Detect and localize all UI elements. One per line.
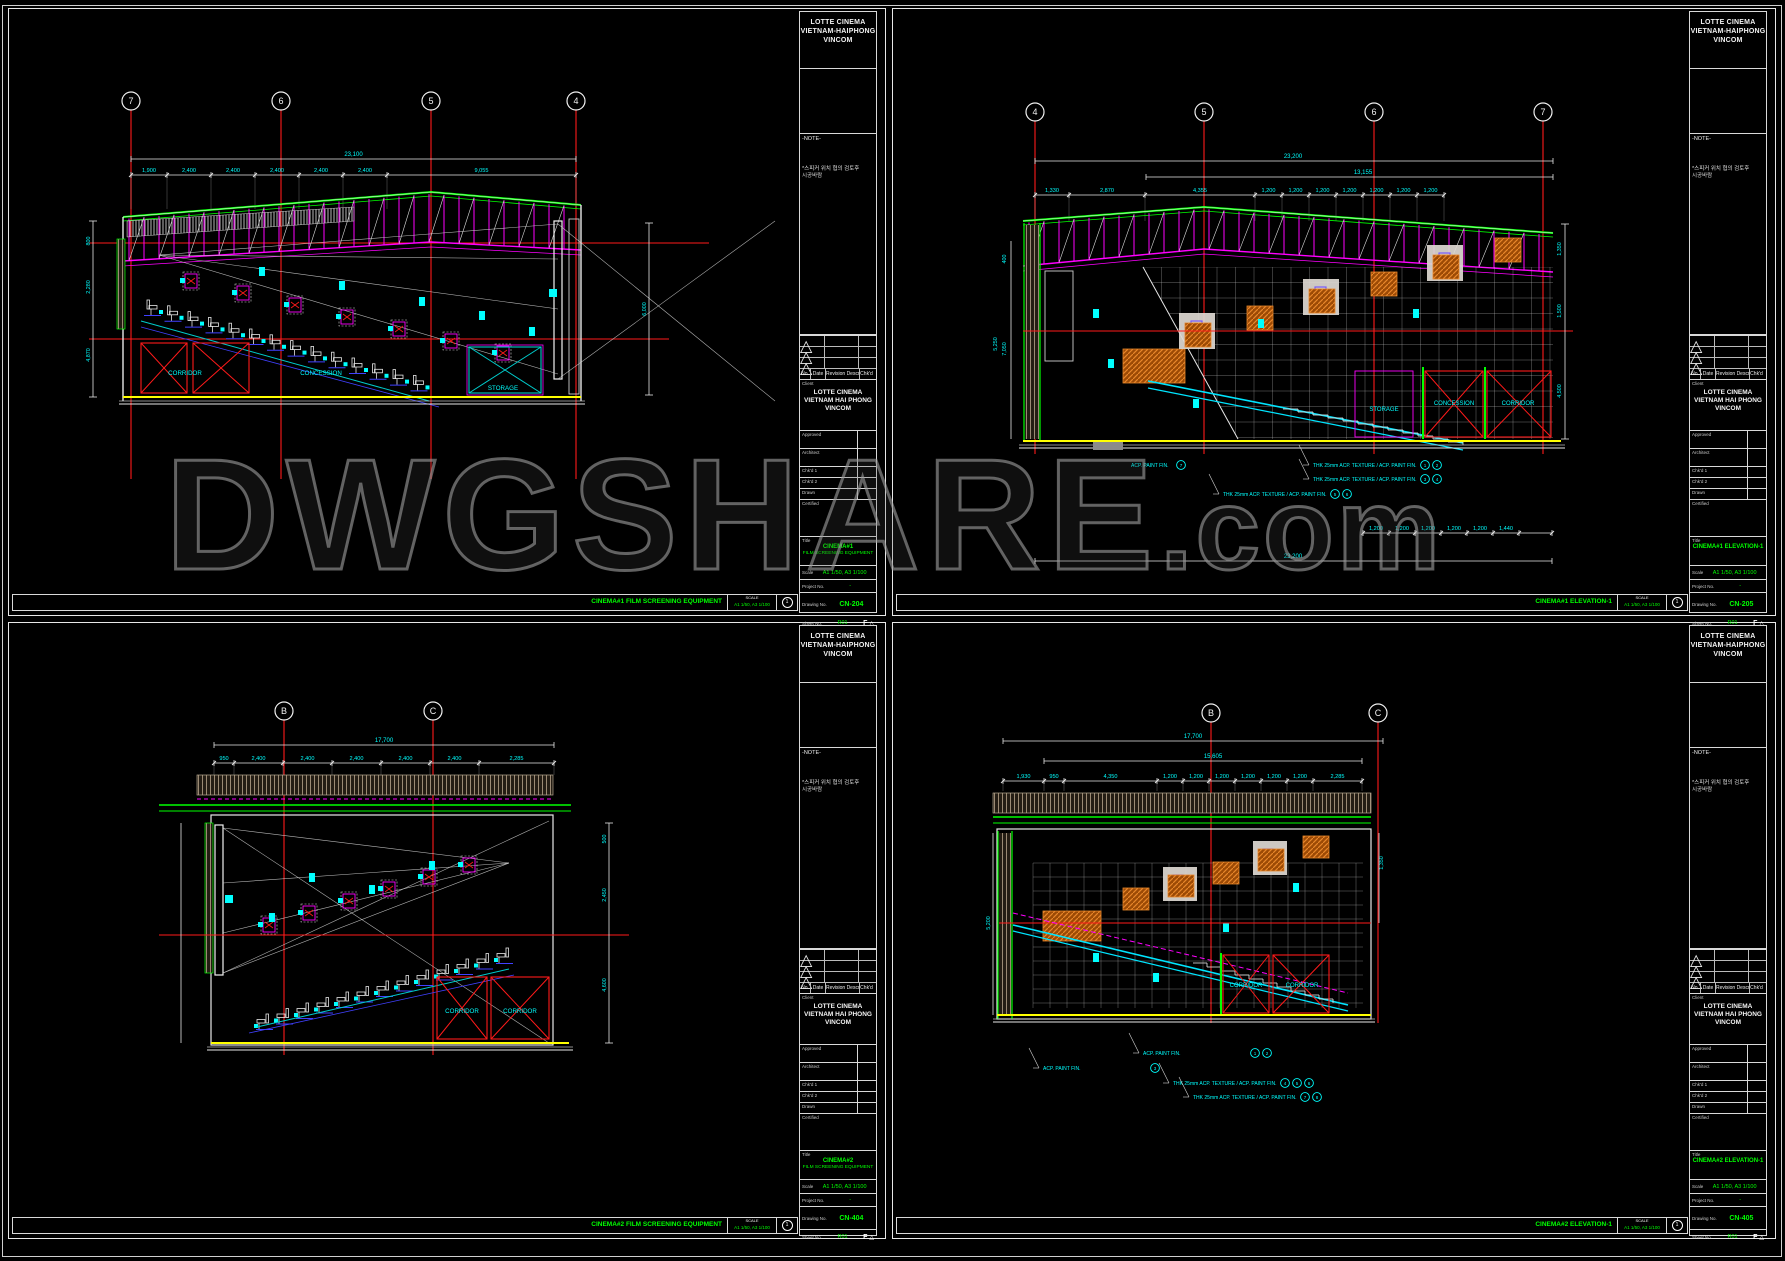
- grid-bubble-label: B: [281, 706, 287, 716]
- revision-row: △: [1690, 347, 1766, 358]
- title-block: LOTTE CINEMAVIETNAM-HAIPHONGVINCOM-NOTE-…: [799, 11, 877, 613]
- project-no-row: Project No.-: [800, 580, 876, 593]
- signoff-label: Chk'd 2: [802, 1093, 855, 1098]
- signoff-check-cell: [1747, 467, 1766, 477]
- annotation-text: THK 25mm ACP. TEXTURE / ACP. PAINT FIN.: [1173, 1081, 1276, 1087]
- drawing-title-box: TitleCINEMA#2FILM SCREENING EQUIPMENT: [800, 1151, 876, 1180]
- client-label: Client: [1692, 995, 1764, 1000]
- client-name-line: VIETNAM HAI PHONG: [802, 1011, 874, 1019]
- dimension-vertical: 800: [86, 237, 92, 246]
- project-value: -: [1716, 1197, 1764, 1203]
- note-text: *스피커 위치 협의 검토후시공바람: [1692, 780, 1764, 794]
- rooms: CORRIDORCONCESSIONSTORAGE: [141, 343, 543, 395]
- annotation-circle-number: 7: [1180, 463, 1183, 468]
- signoff-chkd1: Chk'd 1: [1690, 1081, 1766, 1092]
- project-no-row: Project No.-: [1690, 1194, 1766, 1207]
- dimension-segment: 1,200: [1369, 526, 1383, 532]
- note-line: 시공바람: [802, 787, 874, 794]
- signoff-label-cell: Chk'd 2: [1690, 478, 1747, 488]
- left-wall: [1024, 223, 1073, 441]
- signoff-label: Approved: [802, 1046, 855, 1051]
- note-text: *스피커 위치 협의 검토후시공바람: [802, 780, 874, 794]
- revision-chk-cell: [859, 961, 872, 971]
- dimension-segment: 1,200: [1289, 188, 1303, 194]
- grid-bubble-label: B: [1208, 708, 1214, 718]
- signoff-drawn: Drawn: [1690, 489, 1766, 500]
- revision-triangle-icon: △: [1690, 347, 1700, 357]
- signoff-chkd1: Chk'd 1: [1690, 467, 1766, 478]
- revision-header-cell: Chk'd: [860, 369, 873, 379]
- client-label: Client: [1692, 381, 1764, 386]
- signoff-label-cell: Chk'd 2: [800, 1092, 857, 1102]
- strip-sheet-circle-icon: 1: [782, 597, 793, 608]
- revision-chk-cell: [859, 336, 872, 346]
- signoff-chkd1: Chk'd 1: [800, 1081, 876, 1092]
- signoff-label-cell: Chk'd 1: [800, 1081, 857, 1091]
- dimension-segment: 1,200: [1293, 774, 1307, 780]
- drawing-label: 1,350: [1557, 242, 1563, 256]
- note-box: -NOTE-*스피커 위치 협의 검토후시공바람: [800, 748, 876, 949]
- strip-drawing-title: CINEMA#2 ELEVATION-1: [897, 1218, 1618, 1233]
- annotation-circle-number: 1: [1254, 1051, 1257, 1056]
- scale-row: ScaleA1 1/50, A3 1/100: [800, 566, 876, 580]
- company-header-line: LOTTE CINEMA: [800, 18, 876, 27]
- signoff-label: Chk'd 2: [1692, 479, 1745, 484]
- client-name: LOTTE CINEMAVIETNAM HAI PHONGVINCOM: [1692, 1003, 1764, 1027]
- signoff-label: Drawn: [802, 1104, 855, 1109]
- room-label: CORRIDOR: [1230, 983, 1263, 989]
- title-block-header: LOTTE CINEMAVIETNAM-HAIPHONGVINCOM: [800, 626, 876, 683]
- title-block-header: LOTTE CINEMAVIETNAM-HAIPHONGVINCOM: [1690, 626, 1766, 683]
- dimension-segment: 1,200: [1421, 526, 1435, 532]
- note-label: -NOTE-: [1692, 136, 1764, 142]
- signoff-label: Drawn: [1692, 1104, 1745, 1109]
- revision-header-row: No.DateRevision DescriptionChk'd: [800, 369, 876, 379]
- revision-date-cell: [810, 336, 825, 346]
- client-name-line: LOTTE CINEMA: [1692, 389, 1764, 397]
- revision-header-cell: Chk'd: [860, 983, 873, 993]
- signoff-label: Approved: [802, 432, 855, 437]
- drawing-no-row: Drawing No.CN-204: [800, 593, 876, 616]
- drawing-label: 5,200: [986, 916, 992, 930]
- drawing-cinema2-elevation: BC17,70015,6051,9309504,3501,2001,2001,2…: [986, 704, 1387, 1101]
- room-label: CORRIDOR: [445, 1008, 479, 1015]
- grid-bubble-label: 7: [128, 96, 133, 106]
- drawing-no-label: Drawing No.: [802, 1216, 827, 1221]
- revision-row: △: [1690, 950, 1766, 961]
- signoff-architect: Architect: [1690, 1063, 1766, 1081]
- signoff-label: Chk'd 1: [1692, 468, 1745, 473]
- sheet-cn-204: 765423,1001,9002,4002,4002,4002,4002,400…: [8, 8, 886, 616]
- signoff-check-cell: [1747, 1092, 1766, 1102]
- signoff-architect: Architect: [800, 449, 876, 467]
- dimension-segment: 2,400: [182, 168, 196, 174]
- revision-date-cell: [1700, 972, 1715, 982]
- client-box: ClientLOTTE CINEMAVIETNAM HAI PHONGVINCO…: [1690, 994, 1766, 1045]
- annotation-circle-number: 2: [1436, 463, 1439, 468]
- company-header-line: VINCOM: [1690, 36, 1766, 45]
- note-line: 시공바람: [1692, 173, 1764, 180]
- revision-date-cell: [810, 347, 825, 357]
- grid-bubble-label: 6: [278, 96, 283, 106]
- signoff-label-cell: Approved: [1690, 431, 1747, 448]
- sheet-no-row: Sheet No.R01F△: [800, 1230, 876, 1244]
- scale-row: ScaleA1 1/50, A3 1/100: [1690, 566, 1766, 580]
- signoff-label-cell: Approved: [800, 1045, 857, 1062]
- company-header-line: VIETNAM-HAIPHONG: [800, 641, 876, 650]
- signoff-label: Drawn: [802, 490, 855, 495]
- annotation-circle-number: 4: [1436, 477, 1439, 482]
- annotations-group: ACP. PAINT FIN.12ACP. PAINT FIN.3THK 25m…: [1029, 1033, 1321, 1101]
- revision-table: △△△No.DateRevision DescriptionChk'd: [1690, 950, 1766, 994]
- revision-chk-cell: [1749, 961, 1762, 971]
- floor-lines: [1019, 441, 1565, 450]
- scale-row: ScaleA1 1/50, A3 1/100: [1690, 1180, 1766, 1194]
- scale-row: ScaleA1 1/50, A3 1/100: [800, 1180, 876, 1194]
- client-box: ClientLOTTE CINEMAVIETNAM HAI PHONGVINCO…: [800, 380, 876, 431]
- note-box: -NOTE-*스피커 위치 협의 검토후시공바람: [1690, 748, 1766, 949]
- certified-label: Certified: [802, 501, 874, 506]
- title-block: LOTTE CINEMAVIETNAM-HAIPHONGVINCOM-NOTE-…: [1689, 625, 1767, 1236]
- signoff-chkd2: Chk'd 2: [1690, 1092, 1766, 1103]
- revision-chk-cell: [859, 972, 872, 982]
- annotation-circle-number: 6: [1346, 492, 1349, 497]
- client-name-line: VIETNAM HAI PHONG: [1692, 1011, 1764, 1019]
- annotation-text: THK 25mm ACP. TEXTURE / ACP. PAINT FIN.: [1313, 477, 1416, 483]
- client-name-line: VINCOM: [1692, 1019, 1764, 1027]
- dimension-segment: 2,400: [399, 756, 413, 762]
- revision-desc-cell: [825, 336, 859, 346]
- strip-drawing-title: CINEMA#1 ELEVATION-1: [897, 595, 1618, 610]
- signoff-chkd1: Chk'd 1: [800, 467, 876, 478]
- annotation-text: ACP. PAINT FIN.: [1143, 1051, 1181, 1057]
- signoff-label-cell: Drawn: [1690, 489, 1747, 499]
- project-value: -: [826, 1197, 874, 1203]
- room-label: CONCESSION: [300, 370, 342, 377]
- revision-chk-cell: [1749, 950, 1762, 960]
- revision-row: △: [1690, 972, 1766, 983]
- dimension-segment: 1,330: [1045, 188, 1059, 194]
- client-name-line: VIETNAM HAI PHONG: [802, 397, 874, 405]
- dimension-segment: 1,200: [1267, 774, 1281, 780]
- company-header-line: VIETNAM-HAIPHONG: [1690, 27, 1766, 36]
- drawing-cinema2-section: BC17,7009502,4002,4002,4002,4002,4002,28…: [159, 702, 629, 1055]
- revision-row: △: [1690, 358, 1766, 369]
- signoff-label: Architect: [1692, 1064, 1745, 1069]
- signoff-label-cell: Chk'd 2: [800, 478, 857, 488]
- dimension-segment: 2,400: [226, 168, 240, 174]
- bottom-strip: CINEMA#2 ELEVATION-1SCALEA1 1/50, A3 1/1…: [896, 1217, 1688, 1234]
- company-header-line: VINCOM: [800, 650, 876, 659]
- revision-date-cell: [1700, 961, 1715, 971]
- dimension-vertical: 500: [602, 835, 608, 844]
- client-box: ClientLOTTE CINEMAVIETNAM HAI PHONGVINCO…: [800, 994, 876, 1045]
- signoff-label: Approved: [1692, 432, 1745, 437]
- note-line: *스피커 위치 협의 검토후: [1692, 780, 1764, 787]
- strip-circle-cell: 1: [1667, 595, 1687, 610]
- logo-letter-icon: F: [863, 1234, 867, 1241]
- dimension-segment: 2,870: [1100, 188, 1114, 194]
- annotation-text: ACP. PAINT FIN.: [1043, 1066, 1081, 1072]
- annotation-circle-number: 5: [1296, 1081, 1299, 1086]
- signoff-check-cell: [1747, 1103, 1766, 1113]
- revision-date-cell: [1700, 336, 1715, 346]
- signoff-check-cell: [1747, 449, 1766, 466]
- revision-table: △△△No.DateRevision DescriptionChk'd: [1690, 336, 1766, 380]
- revision-desc-cell: [1715, 358, 1749, 368]
- signoff-label: Architect: [802, 450, 855, 455]
- signoff-label-cell: Architect: [1690, 449, 1747, 466]
- annotation-text: THK 25mm ACP. TEXTURE / ACP. PAINT FIN.: [1193, 1095, 1296, 1101]
- annotation-circle-number: 7: [1304, 1095, 1307, 1100]
- room-label: CORRIDOR: [1502, 401, 1535, 407]
- signoff-architect: Architect: [800, 1063, 876, 1081]
- sheet-no-row: Sheet No.R01F△: [1690, 1230, 1766, 1244]
- room-label: CORRIDOR: [1286, 983, 1319, 989]
- note-line: *스피커 위치 협의 검토후: [802, 780, 874, 787]
- grid-bubble-label: 5: [1201, 107, 1206, 117]
- scale-value: A1 1/50, A3 1/100: [1705, 1184, 1764, 1190]
- project-no-row: Project No.-: [1690, 580, 1766, 593]
- client-name-line: VINCOM: [802, 1019, 874, 1027]
- bottom-strip: CINEMA#1 FILM SCREENING EQUIPMENTSCALEA1…: [12, 594, 798, 611]
- signoff-chkd2: Chk'd 2: [800, 1092, 876, 1103]
- company-header-line: VINCOM: [1690, 650, 1766, 659]
- revision-triangle-icon: △: [1690, 358, 1700, 368]
- company-header-line: LOTTE CINEMA: [800, 632, 876, 641]
- signoff-label-cell: Chk'd 1: [800, 467, 857, 477]
- revision-header-row: No.DateRevision DescriptionChk'd: [800, 983, 876, 993]
- note-line: 시공바람: [802, 173, 874, 180]
- grid-bubble-label: 7: [1540, 107, 1545, 117]
- drawing-no-row: Drawing No.CN-404: [800, 1207, 876, 1230]
- strip-scale-cell: SCALEA1 1/50, A3 1/100: [1618, 1218, 1667, 1233]
- dimension-segment: 2,400: [358, 168, 372, 174]
- strip-sheet-circle-icon: 1: [1672, 597, 1683, 608]
- sheet-no-value: R01: [822, 1234, 863, 1240]
- signoff-label-cell: Chk'd 2: [1690, 1092, 1747, 1102]
- signoff-chkd2: Chk'd 2: [800, 478, 876, 489]
- revision-desc-cell: [825, 961, 859, 971]
- drawing-area-cn-405: BC17,70015,6051,9309504,3501,2001,2001,2…: [893, 623, 1775, 1238]
- revision-header-cell: Date: [811, 983, 826, 993]
- note-line: 시공바람: [1692, 787, 1764, 794]
- dimension-segment: 4,350: [1104, 774, 1118, 780]
- signoff-label-cell: Architect: [800, 1063, 857, 1080]
- dimension-vertical: 4,870: [86, 348, 92, 362]
- dimension-overall: 23,200: [1284, 154, 1303, 160]
- revision-row: △: [800, 961, 876, 972]
- revision-header-cell: Revision Description: [826, 983, 860, 993]
- signoff-approved: Approved: [1690, 1045, 1766, 1063]
- signoff-label: Drawn: [1692, 490, 1745, 495]
- client-label: Client: [802, 995, 874, 1000]
- dimension-segment: 1,200: [1163, 774, 1177, 780]
- annotation-text: THK 25mm ACP. TEXTURE / ACP. PAINT FIN.: [1313, 463, 1416, 469]
- client-name-line: VINCOM: [1692, 405, 1764, 413]
- roof-slab: [159, 775, 571, 811]
- dimension-segment: 1,200: [1473, 526, 1487, 532]
- signoff-check-cell: [857, 1103, 876, 1113]
- roof-truss: [123, 192, 581, 266]
- signoff-check-cell: [857, 1081, 876, 1091]
- revision-row: △: [800, 358, 876, 369]
- rooms: CORRIDORCORRIDOR: [437, 977, 549, 1039]
- client-name-line: LOTTE CINEMA: [802, 389, 874, 397]
- logo-box: [1690, 69, 1766, 134]
- client-box: ClientLOTTE CINEMAVIETNAM HAI PHONGVINCO…: [1690, 380, 1766, 431]
- drawing-label: 7,050: [1002, 342, 1008, 356]
- dimension-vertical: 4,600: [602, 978, 608, 992]
- drawing-title-line: CINEMA#2: [802, 1157, 874, 1165]
- annotation-circle-number: 2: [1266, 1051, 1269, 1056]
- title-block: LOTTE CINEMAVIETNAM-HAIPHONGVINCOM-NOTE-…: [799, 625, 877, 1236]
- company-header-line: VIETNAM-HAIPHONG: [1690, 641, 1766, 650]
- company-header-line: VIETNAM-HAIPHONG: [800, 27, 876, 36]
- grid-bubble-label: C: [430, 706, 437, 716]
- revision-header-row: No.DateRevision DescriptionChk'd: [1690, 983, 1766, 993]
- signoff-check-cell: [857, 431, 876, 448]
- drawing-area-cn-404: BC17,7009502,4002,4002,4002,4002,4002,28…: [9, 623, 885, 1238]
- note-box: -NOTE-*스피커 위치 협의 검토후시공바람: [1690, 134, 1766, 335]
- signoff-approved: Approved: [800, 1045, 876, 1063]
- revision-triangle-icon: △: [1690, 950, 1700, 960]
- signoff-label: Chk'd 1: [802, 468, 855, 473]
- delta-icon: △: [869, 1234, 874, 1241]
- drawing-label: 5,250: [993, 337, 999, 351]
- dimension-segment: 2,400: [448, 756, 462, 762]
- signoff-drawn: Drawn: [800, 1103, 876, 1114]
- drawing-label: 4,500: [1557, 384, 1563, 398]
- strip-circle-cell: 1: [777, 595, 797, 610]
- strip-scale-value: A1 1/50, A3 1/100: [728, 601, 776, 608]
- dimension-segment: 1,200: [1370, 188, 1384, 194]
- delta-icon: △: [1759, 1234, 1764, 1241]
- top-dimensions: 17,7009502,4002,4002,4002,4002,4002,285: [212, 738, 556, 775]
- revision-desc-cell: [1715, 961, 1749, 971]
- revision-triangle-icon: △: [800, 972, 810, 982]
- dimension-segment: 9,055: [475, 168, 489, 174]
- revision-triangle-icon: △: [800, 961, 810, 971]
- annotation-text: ACP. PAINT FIN.: [1131, 463, 1169, 469]
- strip-scale-value: A1 1/50, A3 1/100: [728, 1224, 776, 1231]
- signoff-check-cell: [1747, 431, 1766, 448]
- signoff-check-cell: [1747, 489, 1766, 499]
- dimension-vertical: 6,000: [642, 302, 648, 316]
- strip-circle-cell: 1: [777, 1218, 797, 1233]
- revision-header-row: No.DateRevision DescriptionChk'd: [1690, 369, 1766, 379]
- note-label: -NOTE-: [802, 136, 874, 142]
- drawing-no-value: CN-405: [1719, 1215, 1764, 1222]
- dimension-segment: 1,440: [1499, 526, 1513, 532]
- revision-header-cell: Date: [1701, 369, 1716, 379]
- certified-label: Certified: [1692, 1115, 1764, 1120]
- dimension-segment: 1,200: [1316, 188, 1330, 194]
- annotations-group: THK 25mm ACP. TEXTURE / ACP. PAINT FIN.1…: [1131, 445, 1441, 498]
- signoff-check-cell: [1747, 1063, 1766, 1080]
- revision-triangle-icon: △: [800, 336, 810, 346]
- drawing-label: 1,500: [1557, 304, 1563, 318]
- revision-desc-cell: [825, 358, 859, 368]
- revision-row: △: [800, 972, 876, 983]
- revision-chk-cell: [859, 950, 872, 960]
- signoff-label-cell: Chk'd 1: [1690, 1081, 1747, 1091]
- revision-desc-cell: [1715, 972, 1749, 982]
- strip-scale-cell: SCALEA1 1/50, A3 1/100: [728, 1218, 777, 1233]
- signoff-check-cell: [857, 467, 876, 477]
- annotation-circle-number: 8: [1316, 1095, 1319, 1100]
- dimension-segment: 2,400: [350, 756, 364, 762]
- revision-date-cell: [810, 961, 825, 971]
- signoff-check-cell: [1747, 1045, 1766, 1062]
- revision-row: △: [1690, 961, 1766, 972]
- revision-triangle-icon: △: [800, 358, 810, 368]
- grid-bubble-label: 5: [428, 96, 433, 106]
- dimension-segment: 1,200: [1395, 526, 1409, 532]
- drawing-label: 400: [1002, 255, 1008, 264]
- signoff-check-cell: [1747, 1081, 1766, 1091]
- project-label: Project No.: [1692, 584, 1714, 589]
- revision-desc-cell: [1715, 336, 1749, 346]
- revision-row: △: [1690, 336, 1766, 347]
- signoff-check-cell: [857, 1063, 876, 1080]
- strip-scale-cell: SCALEA1 1/50, A3 1/100: [1618, 595, 1667, 610]
- revision-header-cell: No.: [800, 983, 811, 993]
- scale-label: Scale: [1692, 1184, 1703, 1189]
- revision-desc-cell: [1715, 950, 1749, 960]
- signoff-architect: Architect: [1690, 449, 1766, 467]
- annotation-circle-number: 3: [1424, 477, 1427, 482]
- signoff-label: Approved: [1692, 1046, 1745, 1051]
- dimension-segment: 1,200: [1397, 188, 1411, 194]
- signoff-label-cell: Chk'd 1: [1690, 467, 1747, 477]
- revision-header-cell: Revision Description: [1716, 983, 1750, 993]
- strip-scale-value: A1 1/50, A3 1/100: [1618, 1224, 1666, 1231]
- signoff-check-cell: [857, 1092, 876, 1102]
- revision-header-cell: Chk'd: [1750, 369, 1763, 379]
- drawing-title-box: TitleCINEMA#2 ELEVATION-1: [1690, 1151, 1766, 1180]
- strip-scale-value: A1 1/50, A3 1/100: [1618, 601, 1666, 608]
- signoff-check-cell: [857, 478, 876, 488]
- signoff-approved: Approved: [1690, 431, 1766, 449]
- strip-drawing-title: CINEMA#2 FILM SCREENING EQUIPMENT: [13, 1218, 728, 1233]
- dimension-segment: 950: [1049, 774, 1058, 780]
- certified-box: Certified: [800, 1114, 876, 1151]
- drawing-no-value: CN-205: [1719, 601, 1764, 608]
- revision-chk-cell: [859, 358, 872, 368]
- note-line: *스피커 위치 협의 검토후: [802, 166, 874, 173]
- signoff-label-cell: Architect: [800, 449, 857, 466]
- revision-date-cell: [810, 358, 825, 368]
- revision-header-cell: Revision Description: [826, 369, 860, 379]
- certified-label: Certified: [802, 1115, 874, 1120]
- revision-triangle-icon: △: [1690, 336, 1700, 346]
- revision-header-cell: Chk'd: [1750, 983, 1763, 993]
- project-no-row: Project No.-: [800, 1194, 876, 1207]
- dimension-segment: 2,400: [314, 168, 328, 174]
- client-name: LOTTE CINEMAVIETNAM HAI PHONGVINCOM: [1692, 389, 1764, 413]
- client-name-line: VIETNAM HAI PHONG: [1692, 397, 1764, 405]
- drawing-no-label: Drawing No.: [802, 602, 827, 607]
- strip-sheet-circle-icon: 1: [1672, 1220, 1683, 1231]
- project-label: Project No.: [1692, 1198, 1714, 1203]
- annotation-text: THK 25mm ACP. TEXTURE / ACP. PAINT FIN.: [1223, 492, 1326, 498]
- dimension-segment: 1,900: [142, 168, 156, 174]
- room-label: STORAGE: [488, 385, 518, 392]
- building-outline: [205, 815, 553, 1045]
- note-box: -NOTE-*스피커 위치 협의 검토후시공바람: [800, 134, 876, 335]
- drawing-no-label: Drawing No.: [1692, 602, 1717, 607]
